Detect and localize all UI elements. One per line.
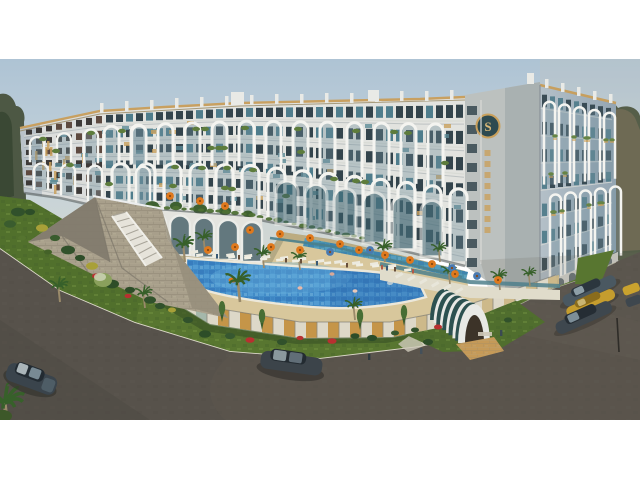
svg-text:S: S [484,119,491,134]
